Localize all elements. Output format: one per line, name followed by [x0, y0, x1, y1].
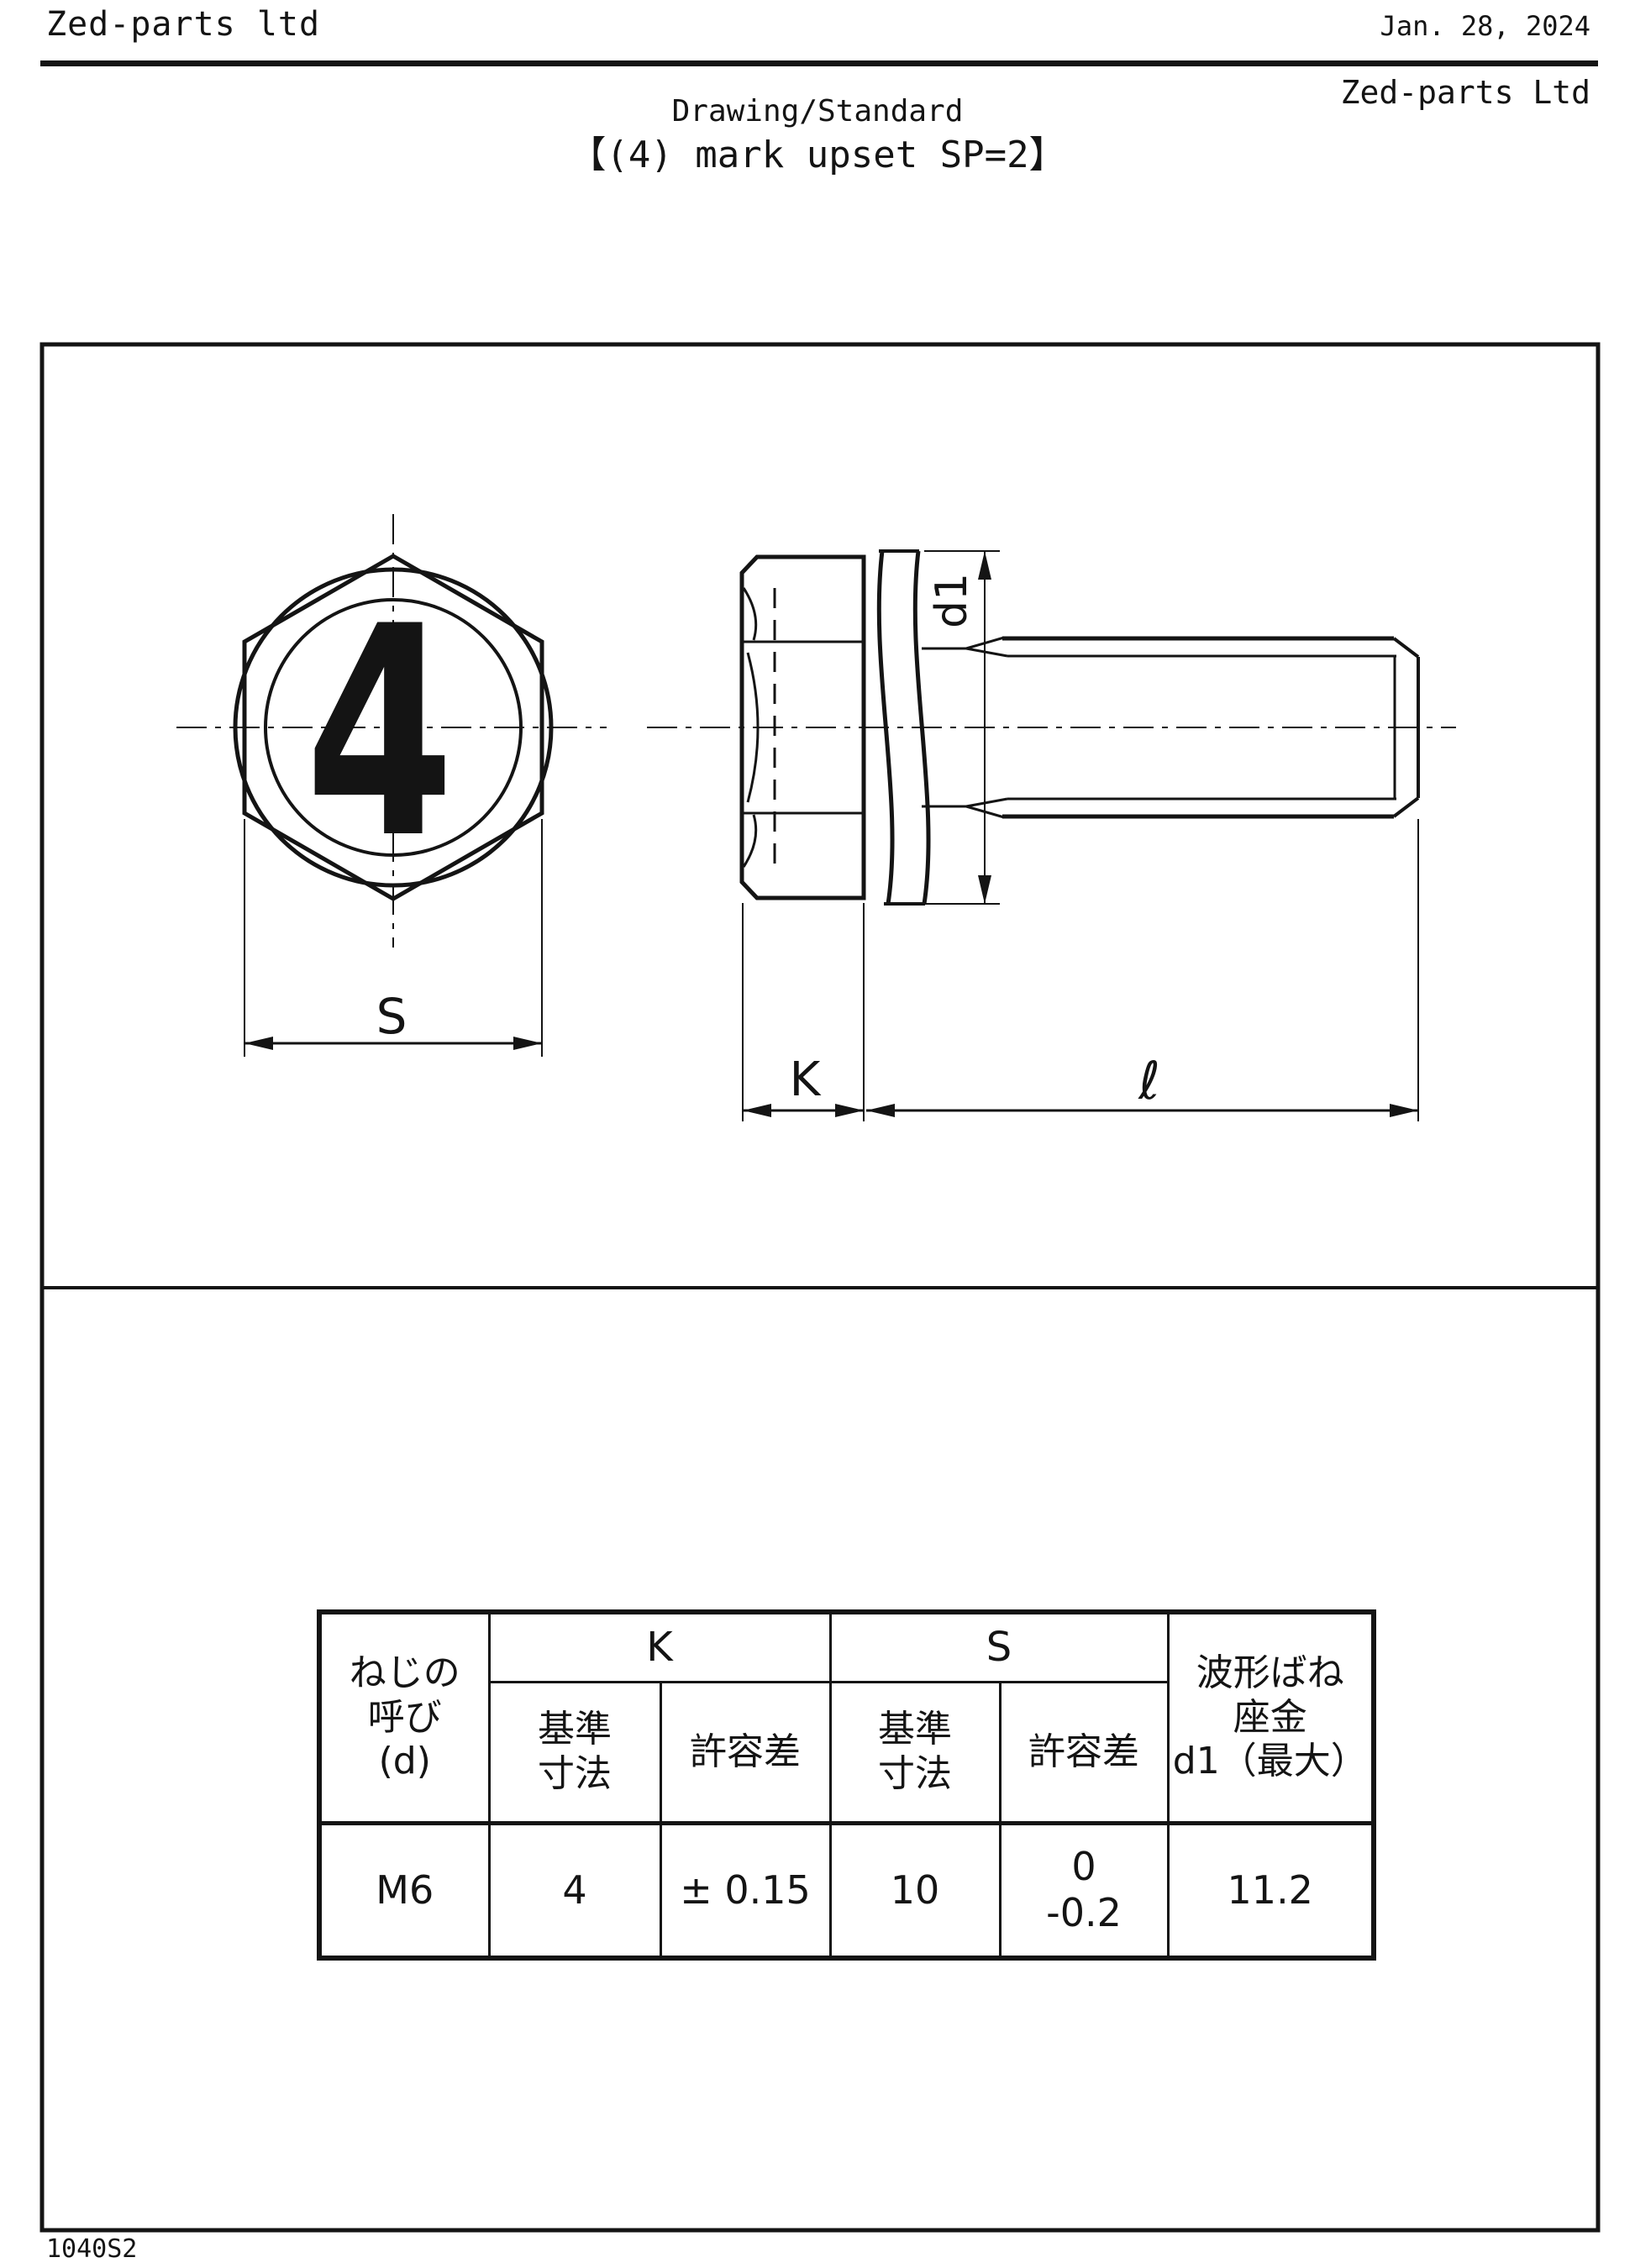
- head-mark: 4: [305, 564, 455, 901]
- col-header-washer: 波形ばね 座金 d1（最大）: [1168, 1612, 1374, 1824]
- cell-k-tolerance: ± 0.15: [660, 1824, 830, 1958]
- head-chamfer-arc-upper: [744, 588, 756, 640]
- col-header-k: K: [489, 1612, 830, 1683]
- col-header-s-tolerance: 許容差: [1000, 1683, 1168, 1824]
- cell-k-basic: 4: [489, 1824, 660, 1958]
- col-header-s-basic: 基準 寸法: [830, 1683, 1000, 1824]
- k-label: K: [790, 1053, 822, 1107]
- cell-washer-d1: 11.2: [1168, 1824, 1374, 1958]
- s-arrow-left: [244, 1037, 273, 1050]
- col-header-k-basic: 基準 寸法: [489, 1683, 660, 1824]
- k-arrow-left: [743, 1104, 771, 1117]
- end-chamfer-bottom: [1394, 798, 1418, 816]
- col-header-s: S: [830, 1612, 1168, 1683]
- k-arrow-right: [835, 1104, 864, 1117]
- d1-arrow-down: [978, 875, 991, 904]
- drawing-sheet: Zed-parts ltd Jan. 28, 2024 Zed-parts Lt…: [0, 0, 1635, 2268]
- length-arrow-right: [1390, 1104, 1418, 1117]
- end-chamfer-top: [1394, 638, 1418, 657]
- col-header-thread: ねじの 呼び (d): [319, 1612, 489, 1824]
- thread-runout-top-b: [966, 648, 1007, 656]
- length-arrow-left: [866, 1104, 895, 1117]
- s-label: S: [376, 988, 407, 1045]
- head-chamfer-arc-lower: [744, 815, 756, 867]
- cell-thread-size: M6: [319, 1824, 489, 1958]
- s-arrow-right: [513, 1037, 542, 1050]
- cell-s-basic: 10: [830, 1824, 1000, 1958]
- spec-table: ねじの 呼び (d) K S 波形ばね 座金 d1（最大） 基準 寸法 許容差 …: [317, 1609, 1376, 1961]
- front-view: 4 S: [176, 514, 607, 1057]
- document-code: 1040S2: [46, 2234, 137, 2264]
- d1-arrow-up: [978, 551, 991, 580]
- thread-runout-bottom-b: [966, 799, 1007, 806]
- d1-label: d1: [927, 573, 977, 628]
- col-header-k-tolerance: 許容差: [660, 1683, 830, 1824]
- cell-s-tolerance: 0 -0.2: [1000, 1824, 1168, 1958]
- side-view: d1: [647, 551, 1456, 1121]
- length-label: ℓ: [1138, 1050, 1160, 1111]
